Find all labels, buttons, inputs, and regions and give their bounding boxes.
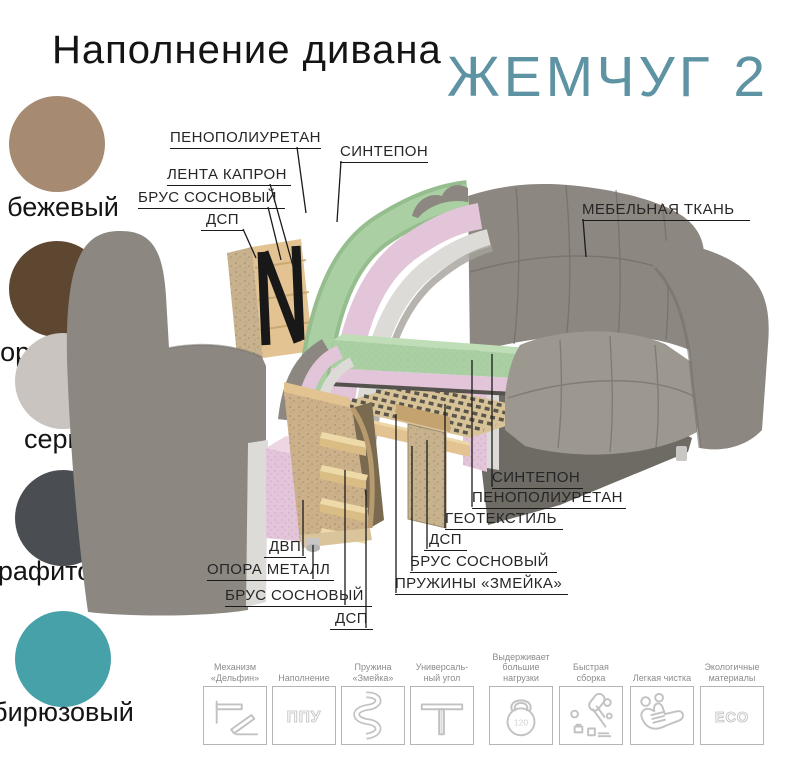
svg-text:ППУ: ППУ <box>287 708 322 725</box>
sofa-infographic-page: { "header": { "title": "Наполнение диван… <box>0 0 793 767</box>
feature-eco-materials: Экологичные материалы ECO <box>690 650 774 745</box>
callout-lenta-kapron: ЛЕНТА КАПРОН <box>167 167 291 186</box>
heavy-load-kettlebell-icon: 120 <box>493 690 549 742</box>
callout-penopoliuretan-top: ПЕНОПОЛИУРЕТАН <box>170 130 321 149</box>
callout-sintepon-top: СИНТЕПОН <box>340 144 428 163</box>
feature-box: ППУ <box>272 686 336 745</box>
callout-penopoliuretan-right: ПЕНОПОЛИУРЕТАН <box>472 490 626 509</box>
seat-cushion <box>505 331 700 454</box>
feature-box <box>203 686 267 745</box>
snake-spring-icon <box>345 690 401 742</box>
feature-box <box>341 686 405 745</box>
callout-brus-sosnovy-right: БРУС СОСНОВЫЙ <box>410 554 557 573</box>
svg-text:ECO: ECO <box>715 709 749 725</box>
feature-box: 120 <box>489 686 553 745</box>
callout-opora-metall: ОПОРА МЕТАЛЛ <box>207 562 334 581</box>
callout-dsp-left: ДСП <box>330 611 373 630</box>
callout-sintepon-right: СИНТЕПОН <box>492 470 583 489</box>
feature-universal-corner: Универсаль- ный угол <box>400 650 484 745</box>
feature-box <box>559 686 623 745</box>
feature-label: Экологичные материалы <box>704 650 759 684</box>
ppu-filling-icon: ППУ <box>276 690 332 742</box>
callout-dvp: ДВП <box>264 539 306 558</box>
callout-mebelnaya-tkan: МЕБЕЛЬНАЯ ТКАНЬ <box>582 202 750 221</box>
feature-label: Быстрая сборка <box>573 650 609 684</box>
arm-sintepon-band <box>246 440 268 607</box>
sofa-foot-right <box>676 446 687 461</box>
feature-label: Наполнение <box>278 650 329 684</box>
dolphin-mechanism-icon <box>207 690 263 742</box>
feature-label: Механизм «Дельфин» <box>211 650 259 684</box>
svg-text:120: 120 <box>514 717 529 727</box>
easy-cleaning-icon <box>634 690 690 742</box>
feature-label: Пружина «Змейка» <box>353 650 394 684</box>
callout-geotextil: ГЕОТЕКСТИЛЬ <box>445 511 563 530</box>
callout-dsp-top: ДСП <box>201 212 244 231</box>
quick-assembly-icon <box>563 690 619 742</box>
feature-label: Универсаль- ный угол <box>416 650 468 684</box>
feature-label: Выдерживает большие нагрузки <box>492 650 549 684</box>
callout-pruzhiny-zmeika: ПРУЖИНЫ «ЗМЕЙКА» <box>395 576 568 595</box>
feature-label: Легкая чистка <box>633 650 691 684</box>
callout-brus-sosnovy-top: БРУС СОСНОВЫЙ <box>138 190 285 209</box>
eco-materials-icon: ECO <box>704 690 760 742</box>
ladder-frame <box>284 382 384 552</box>
universal-corner-icon <box>414 690 470 742</box>
feature-box <box>410 686 474 745</box>
callout-dsp-right: ДСП <box>424 532 467 551</box>
feature-box: ECO <box>700 686 764 745</box>
callout-brus-sosnovy-left: БРУС СОСНОВЫЙ <box>225 588 372 607</box>
feature-box <box>630 686 694 745</box>
